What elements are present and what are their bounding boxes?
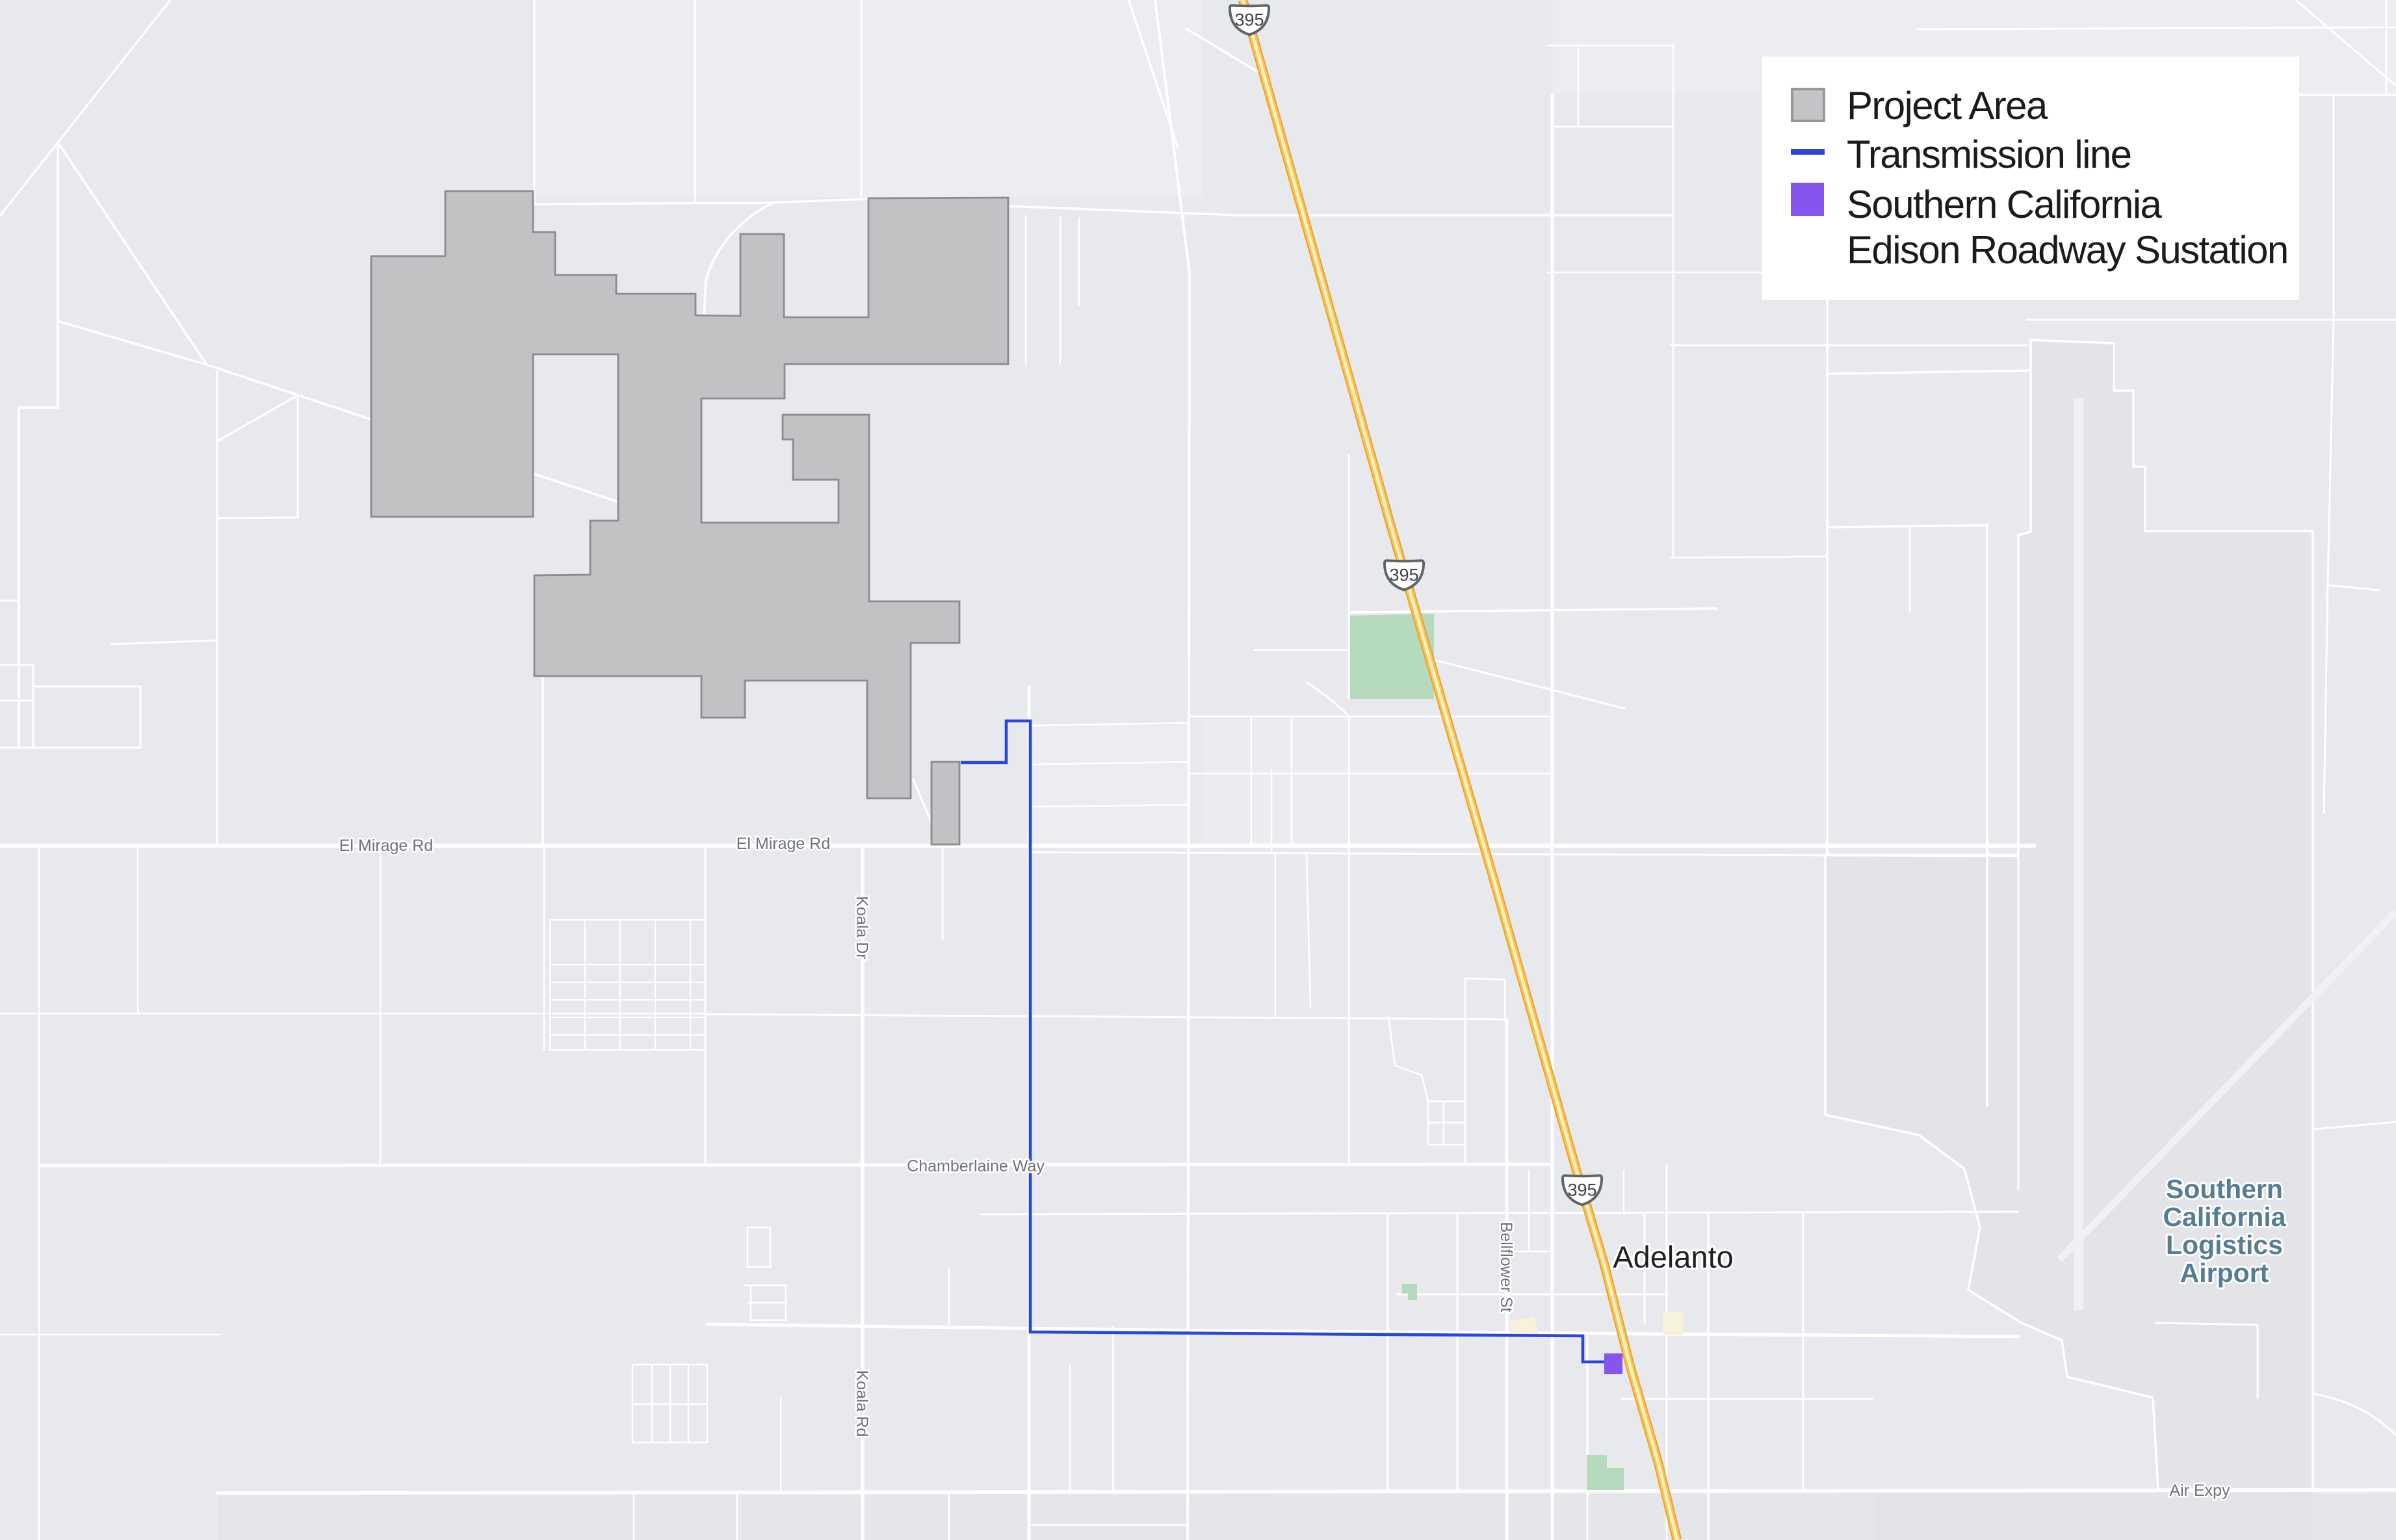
svg-text:Airport: Airport — [2180, 1258, 2269, 1288]
svg-text:Bellflower St: Bellflower St — [1497, 1222, 1515, 1312]
svg-text:Logistics: Logistics — [2166, 1230, 2283, 1260]
svg-text:El Mirage Rd: El Mirage Rd — [736, 835, 831, 853]
svg-text:Transmission line: Transmission line — [1847, 133, 2131, 176]
svg-text:Koala Rd: Koala Rd — [853, 1370, 871, 1437]
svg-text:395: 395 — [1389, 566, 1418, 585]
svg-text:Edison Roadway Sustation: Edison Roadway Sustation — [1847, 228, 2288, 272]
svg-text:El Mirage Rd: El Mirage Rd — [339, 837, 434, 855]
svg-text:Project Area: Project Area — [1847, 84, 2048, 127]
svg-text:Koala Dr: Koala Dr — [853, 896, 871, 959]
svg-text:Southern California: Southern California — [1847, 183, 2162, 226]
svg-text:Air Expy: Air Expy — [2169, 1481, 2230, 1500]
svg-text:California: California — [2163, 1202, 2286, 1232]
svg-text:395: 395 — [1567, 1181, 1596, 1200]
svg-text:Chamberlaine Way: Chamberlaine Way — [907, 1157, 1045, 1175]
svg-text:395: 395 — [1234, 10, 1264, 30]
svg-text:Adelanto: Adelanto — [1613, 1240, 1734, 1274]
svg-text:Southern: Southern — [2166, 1174, 2283, 1204]
